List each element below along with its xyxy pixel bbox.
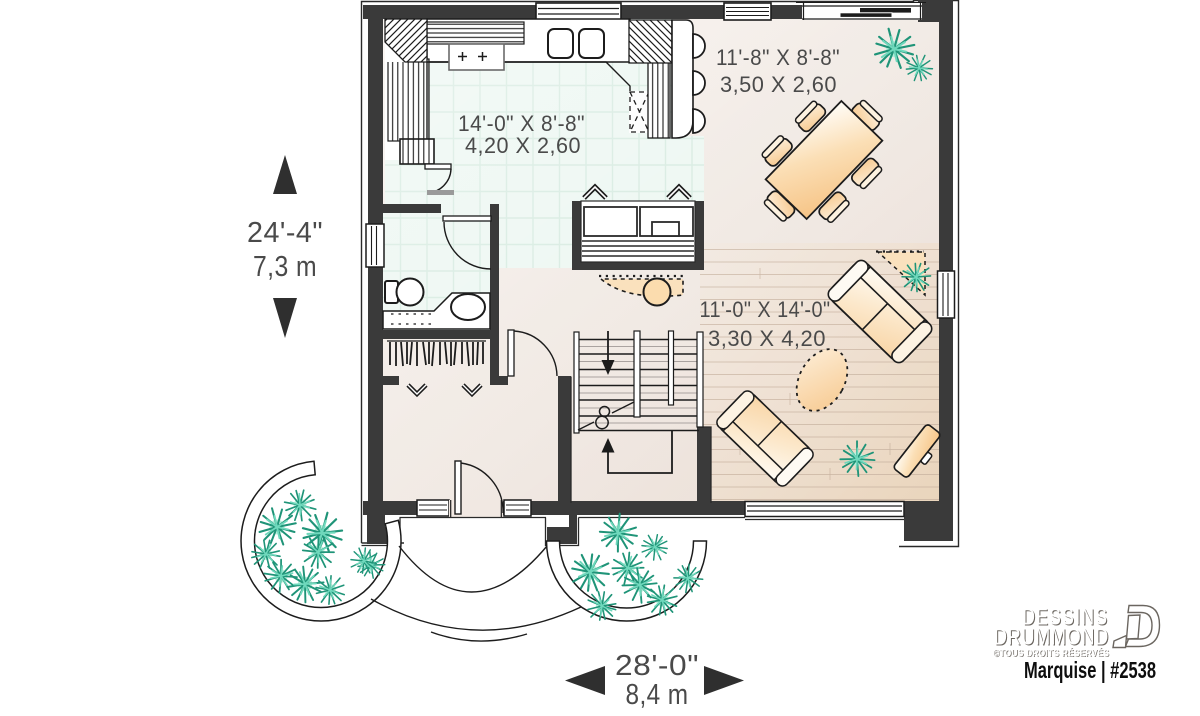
svg-text:11'-8" X 8'-8": 11'-8" X 8'-8" (716, 45, 840, 70)
svg-text:Marquise | #2538: Marquise | #2538 (1024, 657, 1156, 683)
svg-text:7,3 m: 7,3 m (253, 251, 317, 283)
svg-text:4,20 X 2,60: 4,20 X 2,60 (465, 133, 581, 158)
svg-text:3,50 X 2,60: 3,50 X 2,60 (720, 72, 837, 97)
svg-text:24'-4": 24'-4" (247, 217, 323, 249)
svg-text:11'-0" X 14'-0": 11'-0" X 14'-0" (700, 297, 831, 322)
svg-text:28'-0": 28'-0" (615, 650, 699, 682)
svg-text:3,30 X 4,20: 3,30 X 4,20 (708, 326, 826, 351)
svg-text:8,4 m: 8,4 m (626, 679, 689, 711)
svg-text:DRUMMOND: DRUMMOND (994, 624, 1109, 650)
